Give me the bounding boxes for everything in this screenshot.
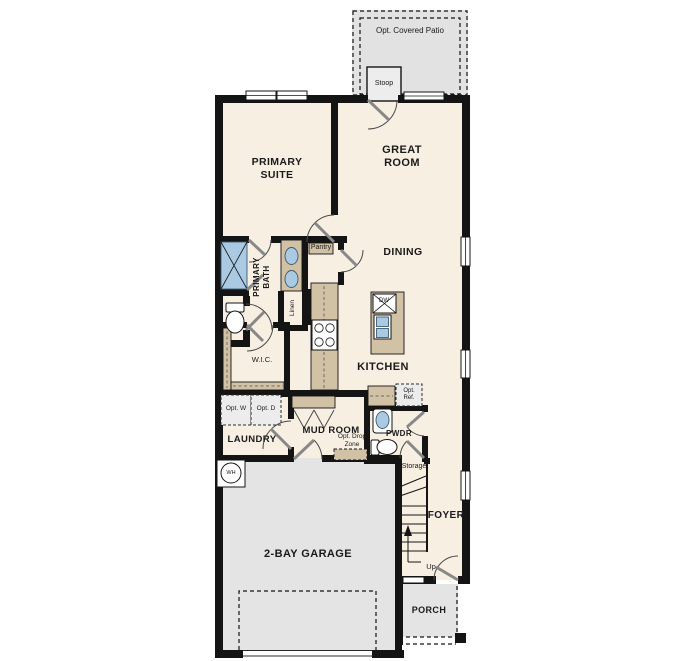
stove (312, 320, 337, 350)
window (461, 471, 470, 500)
label-primary-bath: PRIMARY BATH (250, 254, 274, 300)
island-sink (374, 315, 391, 339)
label-opt-ref: Opt. Ref. (398, 385, 420, 405)
label-up: Up (420, 560, 442, 572)
label-kitchen: KITCHEN (344, 361, 422, 375)
label-opt-drop-zone: Opt. Drop Zone (334, 433, 370, 449)
label-water-heater: WH (220, 468, 242, 478)
label-great-room: GREAT ROOM (372, 141, 432, 173)
label-dishwasher: DW (372, 297, 396, 307)
label-pantry: Pantry (308, 243, 334, 254)
label-opt-washer: Opt. W (222, 399, 250, 419)
label-porch: PORCH (400, 604, 458, 617)
label-laundry: LAUNDRY (220, 433, 284, 446)
window (461, 237, 470, 266)
label-garage: 2-BAY GARAGE (262, 540, 354, 570)
label-opt-dryer: Opt. D (252, 399, 280, 419)
window (403, 577, 424, 583)
window (404, 92, 444, 100)
window (277, 91, 307, 100)
window (246, 91, 276, 100)
shower (221, 242, 247, 289)
label-stoop: Stoop (367, 79, 401, 90)
label-dining: DINING (363, 246, 443, 259)
label-pwdr: PWDR (377, 428, 421, 440)
floor-plan: Opt. Covered Patio Stoop PRIMARY SUITE G… (0, 0, 687, 661)
window (461, 350, 470, 378)
label-storage: Storage (395, 462, 433, 473)
opt-drop-zone-bench (334, 449, 367, 460)
pwdr-toilet (371, 440, 397, 456)
primary-toilet (226, 303, 244, 333)
label-primary-suite: PRIMARY SUITE (236, 153, 318, 185)
mudroom-closet-shelf (292, 396, 335, 408)
label-linen: Linen (288, 294, 298, 322)
label-wic: W.I.C. (238, 353, 286, 365)
label-opt-covered-patio: Opt. Covered Patio (354, 25, 466, 36)
label-foyer: FOYER (423, 509, 469, 523)
